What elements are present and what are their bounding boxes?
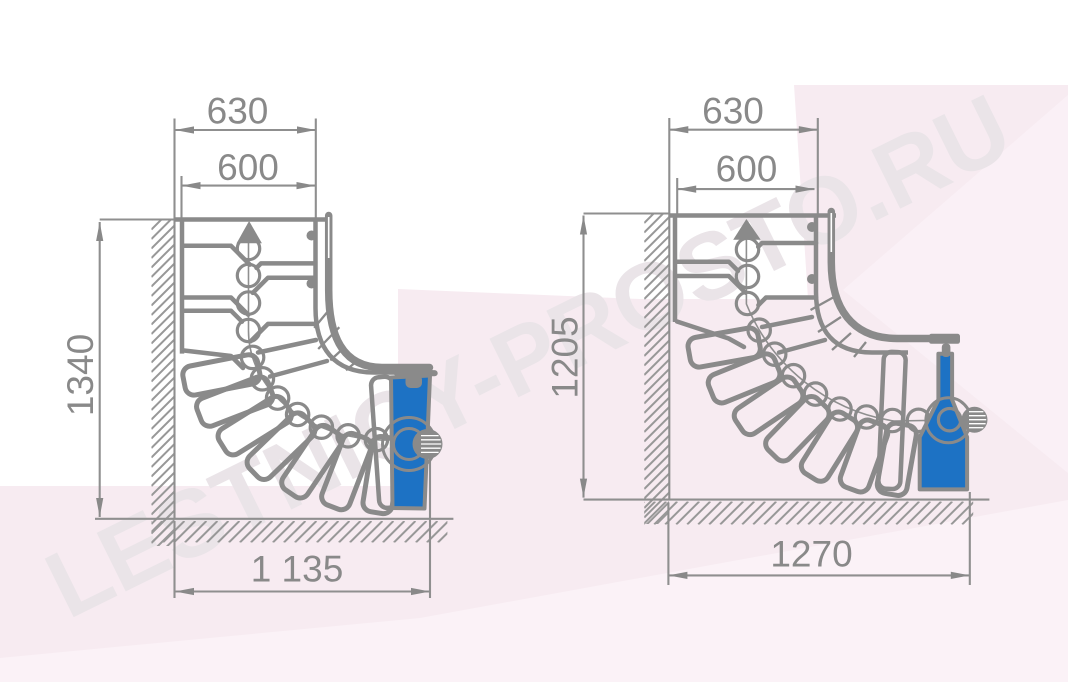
svg-text:600: 600 bbox=[716, 149, 778, 190]
svg-text:630: 630 bbox=[207, 91, 269, 132]
svg-text:1 135: 1 135 bbox=[251, 549, 344, 590]
svg-text:600: 600 bbox=[217, 147, 279, 188]
svg-text:1270: 1270 bbox=[770, 534, 852, 575]
svg-text:630: 630 bbox=[702, 91, 764, 132]
svg-text:1340: 1340 bbox=[60, 334, 101, 416]
svg-text:1205: 1205 bbox=[545, 316, 586, 398]
